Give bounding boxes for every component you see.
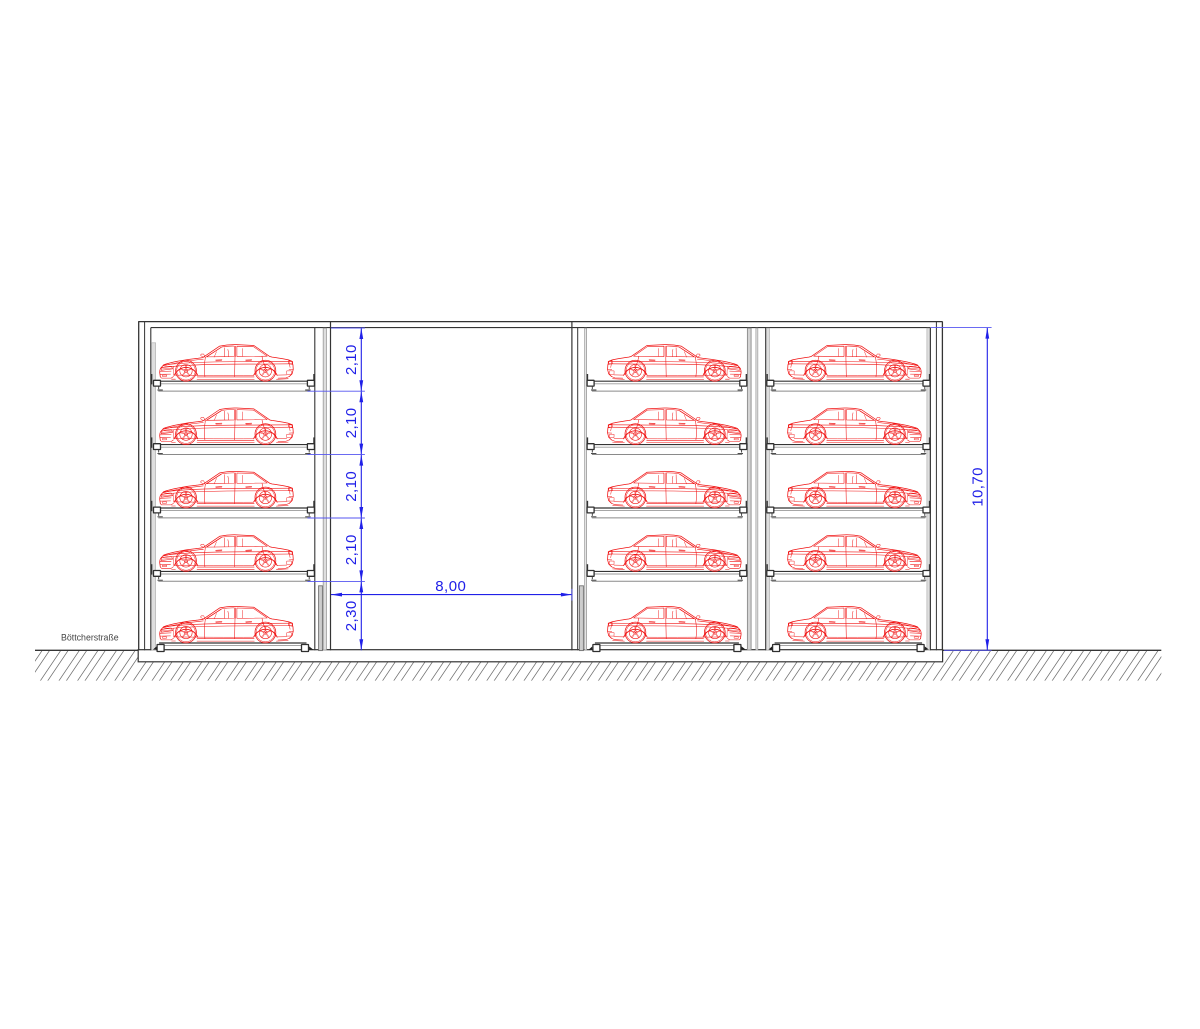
- svg-text:2,30: 2,30: [343, 600, 360, 631]
- svg-text:Böttcherstraße: Böttcherstraße: [61, 633, 119, 643]
- svg-text:8,00: 8,00: [435, 578, 466, 595]
- svg-text:2,10: 2,10: [343, 408, 360, 439]
- svg-text:2,10: 2,10: [343, 344, 360, 375]
- svg-text:2,10: 2,10: [343, 534, 360, 565]
- svg-text:10,70: 10,70: [969, 467, 986, 507]
- svg-text:2,10: 2,10: [343, 471, 360, 502]
